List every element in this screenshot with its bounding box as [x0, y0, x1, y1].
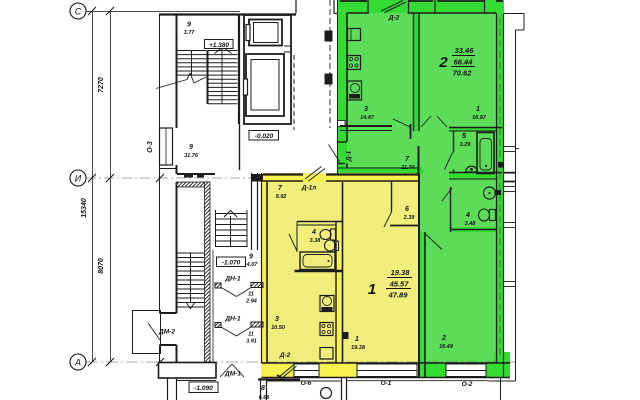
svg-text:9: 9	[189, 144, 193, 151]
svg-text:8: 8	[261, 385, 265, 392]
svg-text:15340: 15340	[81, 198, 88, 218]
svg-text:3.38: 3.38	[310, 238, 322, 244]
svg-text:Д-1л: Д-1л	[301, 185, 317, 192]
svg-text:Д-1: Д-1	[346, 150, 353, 162]
svg-text:2.39: 2.39	[403, 215, 416, 221]
svg-text:19.38: 19.38	[391, 268, 411, 277]
svg-text:45.57: 45.57	[389, 280, 410, 289]
svg-text:6.66: 6.66	[259, 395, 271, 400]
svg-text:3.77: 3.77	[184, 30, 196, 36]
svg-text:47.89: 47.89	[388, 291, 409, 300]
svg-text:И: И	[75, 174, 82, 184]
svg-text:О-1: О-1	[381, 380, 392, 387]
svg-text:С: С	[75, 7, 82, 17]
svg-text:2: 2	[441, 335, 446, 342]
svg-text:4: 4	[465, 212, 470, 219]
svg-text:О-3: О-3	[147, 141, 154, 153]
svg-text:4: 4	[311, 229, 316, 236]
svg-text:Д-2: Д-2	[388, 15, 400, 22]
svg-text:16.97: 16.97	[472, 115, 487, 121]
svg-text:11: 11	[248, 292, 254, 298]
svg-text:3: 3	[364, 106, 368, 113]
svg-text:19.38: 19.38	[351, 345, 366, 351]
svg-text:1: 1	[368, 281, 376, 298]
svg-text:ДМ-2: ДМ-2	[158, 329, 175, 336]
svg-text:9: 9	[187, 22, 191, 29]
svg-text:3: 3	[275, 316, 279, 323]
svg-text:16.49: 16.49	[439, 344, 454, 350]
svg-text:9.92: 9.92	[276, 194, 287, 200]
svg-text:-0.020: -0.020	[255, 133, 274, 140]
svg-text:10.50: 10.50	[271, 325, 285, 331]
svg-text:1: 1	[355, 336, 359, 343]
svg-text:Д-2: Д-2	[279, 352, 291, 359]
svg-text:А: А	[74, 358, 81, 368]
svg-text:9: 9	[249, 254, 253, 261]
svg-text:3.91: 3.91	[246, 339, 257, 345]
svg-text:6: 6	[405, 206, 409, 213]
svg-text:2.94: 2.94	[245, 299, 257, 305]
svg-text:1: 1	[476, 106, 480, 113]
svg-text:-1.070: -1.070	[222, 260, 241, 267]
svg-text:14.47: 14.47	[360, 115, 375, 121]
svg-text:4.07: 4.07	[246, 262, 259, 268]
svg-text:3.48: 3.48	[465, 221, 477, 227]
svg-text:8070: 8070	[98, 258, 105, 274]
svg-text:11.74: 11.74	[401, 165, 414, 171]
svg-text:ДН-1: ДН-1	[224, 276, 241, 283]
svg-text:70.62: 70.62	[453, 69, 473, 78]
svg-text:33.46: 33.46	[455, 46, 475, 55]
svg-text:-1.090: -1.090	[194, 385, 213, 392]
svg-text:+1.380: +1.380	[209, 42, 229, 49]
svg-text:31.76: 31.76	[184, 153, 199, 159]
svg-text:О-6: О-6	[301, 380, 312, 387]
svg-text:7270: 7270	[98, 77, 105, 93]
svg-text:5: 5	[462, 133, 466, 140]
svg-text:11: 11	[248, 332, 254, 338]
svg-text:ДН-1: ДН-1	[224, 316, 241, 323]
svg-text:О-2: О-2	[462, 381, 473, 388]
svg-text:3.29: 3.29	[460, 142, 472, 148]
svg-text:2: 2	[438, 54, 448, 71]
svg-text:ДМ-1: ДМ-1	[224, 371, 241, 378]
svg-text:66.44: 66.44	[454, 58, 474, 67]
